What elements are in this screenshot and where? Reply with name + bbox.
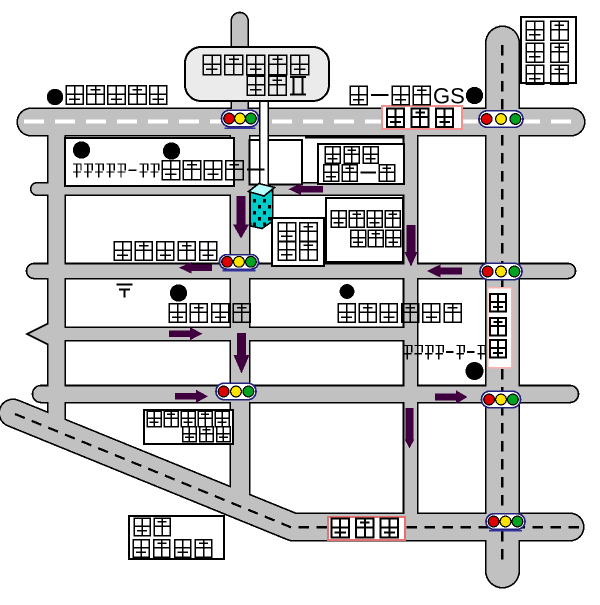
- svg-text:GS: GS: [433, 84, 465, 109]
